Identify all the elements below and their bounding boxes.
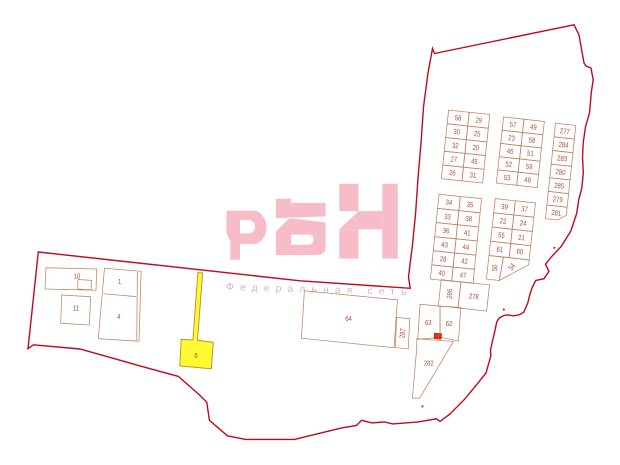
- svg-text:49: 49: [530, 122, 538, 132]
- svg-text:25: 25: [474, 129, 482, 139]
- svg-text:279: 279: [552, 194, 563, 204]
- svg-text:283: 283: [557, 153, 568, 163]
- svg-text:33: 33: [444, 212, 451, 222]
- svg-text:45: 45: [471, 157, 479, 167]
- svg-text:282: 282: [424, 359, 434, 368]
- svg-text:42: 42: [461, 256, 468, 266]
- svg-text:34: 34: [445, 198, 452, 208]
- svg-text:21: 21: [518, 233, 526, 243]
- svg-text:281: 281: [551, 208, 562, 218]
- svg-text:36: 36: [442, 226, 449, 236]
- svg-text:40: 40: [438, 268, 445, 278]
- svg-text:39: 39: [501, 202, 509, 212]
- svg-text:63: 63: [425, 318, 432, 327]
- svg-text:11: 11: [73, 304, 80, 313]
- svg-text:38: 38: [465, 214, 472, 224]
- svg-text:51: 51: [527, 149, 535, 159]
- svg-text:35: 35: [466, 200, 473, 210]
- svg-text:4: 4: [117, 312, 120, 321]
- svg-text:55: 55: [498, 230, 506, 240]
- svg-text:48: 48: [524, 175, 532, 185]
- svg-text:26: 26: [449, 168, 457, 178]
- svg-text:43: 43: [441, 240, 448, 250]
- svg-text:278: 278: [468, 291, 479, 301]
- svg-text:64: 64: [345, 314, 352, 323]
- svg-text:62: 62: [446, 319, 453, 328]
- svg-text:50: 50: [490, 264, 500, 272]
- svg-text:20: 20: [472, 143, 480, 153]
- svg-text:57: 57: [509, 120, 517, 130]
- svg-text:53: 53: [503, 173, 511, 183]
- svg-text:32: 32: [452, 141, 460, 151]
- svg-text:23: 23: [508, 133, 516, 143]
- svg-text:41: 41: [464, 228, 471, 238]
- svg-text:285: 285: [554, 181, 565, 191]
- svg-text:31: 31: [469, 170, 477, 180]
- svg-text:286: 286: [445, 288, 455, 299]
- svg-text:30: 30: [453, 127, 461, 137]
- svg-text:44: 44: [462, 242, 469, 252]
- svg-text:27: 27: [450, 154, 458, 164]
- svg-text:287: 287: [397, 328, 407, 339]
- svg-text:6: 6: [194, 351, 197, 360]
- svg-text:47: 47: [459, 270, 466, 280]
- svg-text:1: 1: [118, 277, 121, 286]
- svg-text:60: 60: [516, 247, 524, 257]
- svg-text:56: 56: [454, 113, 462, 123]
- svg-text:58: 58: [528, 135, 536, 145]
- svg-text:280: 280: [555, 167, 566, 177]
- svg-text:277: 277: [560, 126, 571, 136]
- svg-text:29: 29: [475, 115, 483, 125]
- svg-text:284: 284: [558, 140, 569, 150]
- svg-text:37: 37: [521, 204, 529, 214]
- svg-text:52: 52: [505, 160, 513, 170]
- svg-text:59: 59: [525, 162, 533, 172]
- svg-text:28: 28: [439, 254, 446, 264]
- svg-text:24: 24: [519, 218, 527, 228]
- svg-text:22: 22: [499, 216, 507, 226]
- svg-text:46: 46: [506, 146, 514, 156]
- svg-text:61: 61: [496, 245, 504, 255]
